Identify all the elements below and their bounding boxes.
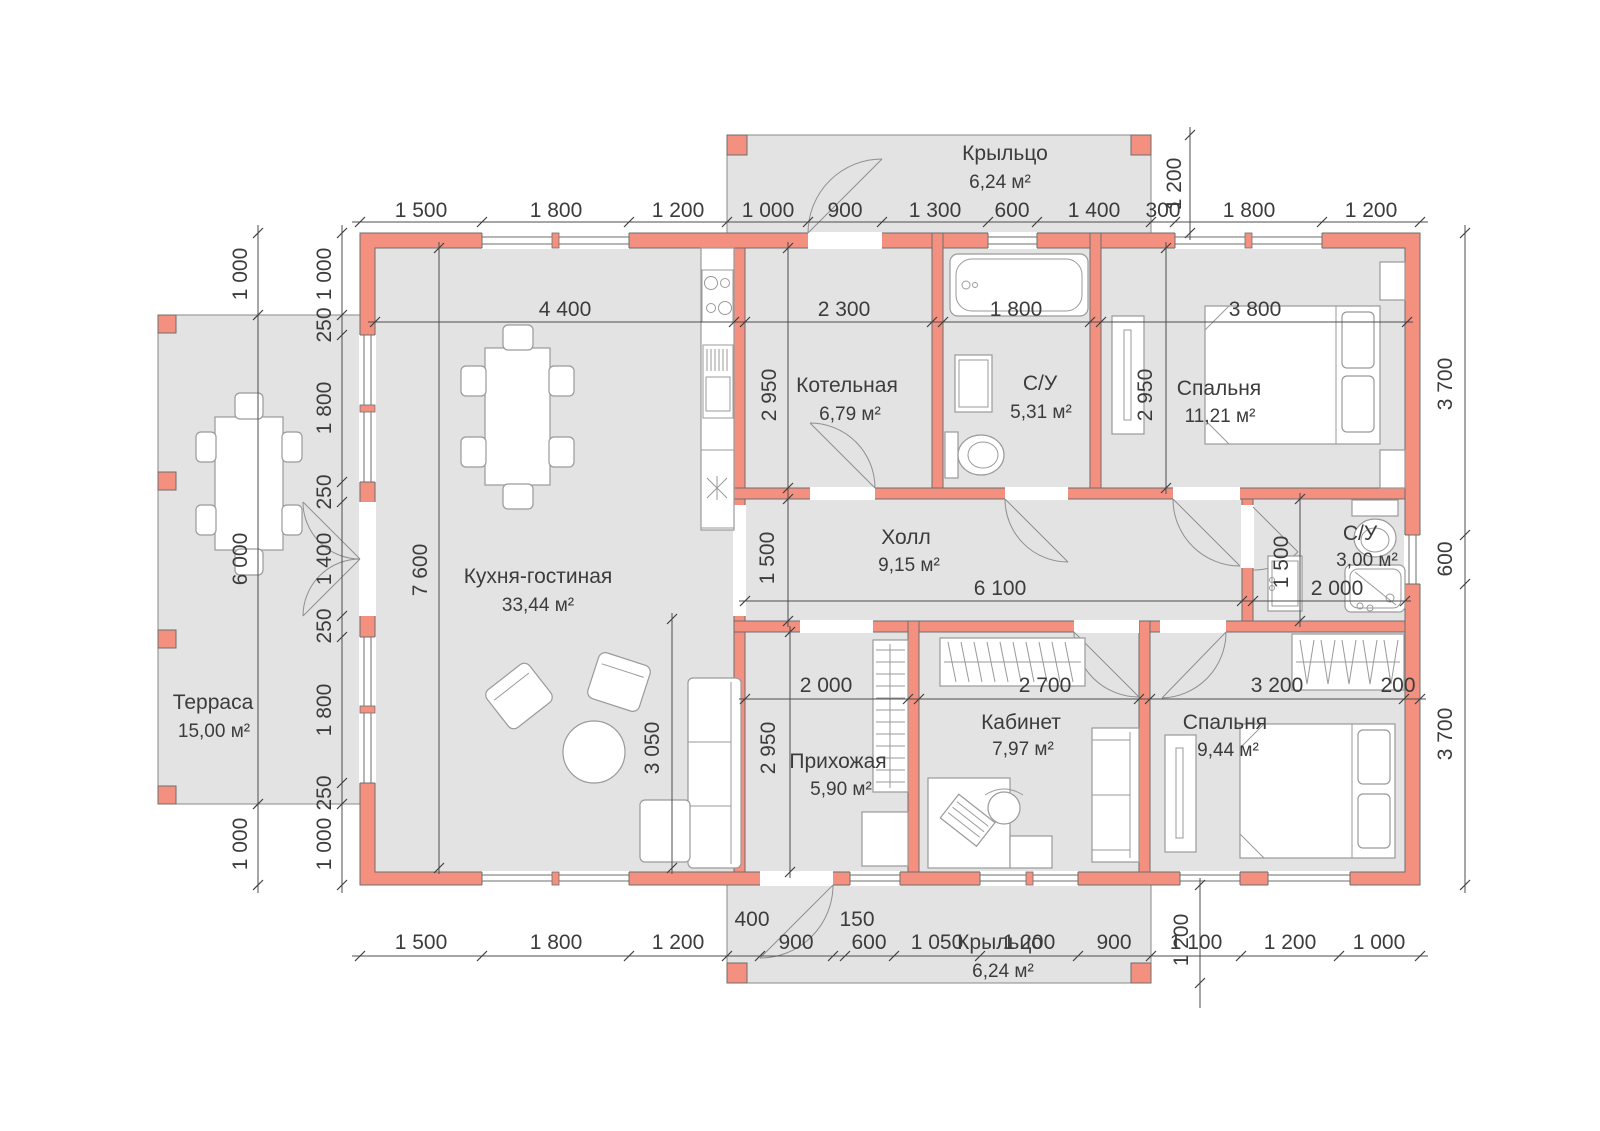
dim-label: 1 400 [1068,199,1121,222]
dim-label: 1 000 [742,199,795,222]
dim-label: 250 [313,307,336,342]
office-chair [988,792,1020,824]
room-label-hall: Холл [881,526,931,549]
room-label-bathroom-main: С/У [1023,372,1058,395]
dim-label: 3 700 [1434,358,1457,411]
room-area-entry: 5,90 м² [810,779,872,800]
dim-label: 1 800 [990,298,1043,321]
room-label-boiler: Котельная [796,374,898,397]
dim-label: 2 000 [1311,577,1364,600]
dim-label: 3 700 [1434,708,1457,761]
dim-label: 1 000 [229,818,252,871]
toilet [945,432,958,478]
dim-label: 2 950 [1134,369,1157,422]
floor-plan-drawing: Крыльцо 6,24 м² Терраса 15,00 м² Кухня-г… [0,0,1600,1131]
dim-label: 250 [313,775,336,810]
dim-label: 600 [994,199,1029,222]
dim-label: 250 [313,474,336,509]
room-area-hall: 9,15 м² [878,555,940,576]
room-area-boiler: 6,79 м² [819,404,881,425]
dim-label: 4 400 [539,298,592,321]
room-area-bathroom-main: 5,31 м² [1010,402,1072,423]
dim-label: 900 [827,199,862,222]
dim-label: 3 200 [1251,674,1304,697]
dim-label: 1 200 [1163,158,1186,211]
dim-label: 600 [1434,541,1457,576]
dim-label: 1 500 [1270,536,1293,589]
dim-label: 2 300 [818,298,871,321]
room-area-porch-bottom: 6,24 м² [972,961,1034,982]
room-area-bedroom2: 9,44 м² [1197,740,1259,761]
dim-label: 150 [839,908,874,931]
dim-label: 1 000 [1353,931,1406,954]
dim-label: 1 200 [1170,914,1193,967]
dim-label: 1 500 [756,532,779,585]
coffee-table [563,721,625,783]
dim-label: 2 950 [757,722,780,775]
wardrobe [1165,735,1196,852]
room-label-entry: Прихожая [789,750,886,773]
dim-label: 1 200 [652,931,705,954]
dim-label: 1 500 [395,199,448,222]
dim-label: 1 200 [1345,199,1398,222]
dim-label: 900 [1096,931,1131,954]
dim-label: 1 400 [313,533,336,586]
sink [955,355,992,412]
room-label-terrace: Терраса [173,691,254,714]
dim-label: 6 100 [974,577,1027,600]
kitchen-counter [701,248,734,530]
dim-label: 2 700 [1019,674,1072,697]
dim-label: 1 000 [313,818,336,871]
dim-label: 1 800 [313,684,336,737]
dim-label: 1 200 [1264,931,1317,954]
room-label-bedroom2: Спальня [1183,711,1267,734]
room-area-bathroom-small: 3,00 м² [1336,550,1398,571]
dim-label: 900 [778,931,813,954]
room-area-porch-top: 6,24 м² [969,172,1031,193]
dim-label: 1 000 [229,248,252,301]
floor-plan-canvas: Крыльцо 6,24 м² Терраса 15,00 м² Кухня-г… [0,0,1600,1131]
dim-label: 200 [1380,674,1415,697]
room-label-bedroom1: Спальня [1177,377,1261,400]
dim-label: 1 500 [395,931,448,954]
dim-label: 6 000 [229,533,252,586]
dim-label: 2 000 [800,674,853,697]
sofa [688,678,741,868]
dim-label: 1 800 [530,199,583,222]
toilet-tank [1352,500,1398,516]
dim-label: 1 200 [1003,931,1056,954]
dim-label: 600 [851,931,886,954]
room-area-office: 7,97 м² [992,739,1054,760]
dim-label: 250 [313,608,336,643]
room-area-kitchen-living: 33,44 м² [502,595,574,616]
room-label-kitchen-living: Кухня-гостиная [464,565,613,588]
dim-label: 3 050 [641,722,664,775]
dim-label: 7 600 [409,544,432,597]
dim-label: 1 800 [530,931,583,954]
room-area-bedroom1: 11,21 м² [1185,406,1256,427]
dim-label: 3 800 [1229,298,1282,321]
dim-label: 2 950 [758,369,781,422]
dim-label: 1 200 [652,199,705,222]
dim-label: 1 050 [911,931,964,954]
room-area-terrace: 15,00 м² [178,721,250,742]
room-label-office: Кабинет [981,711,1061,734]
dim-label: 1 300 [909,199,962,222]
room-label-porch-top: Крыльцо [962,142,1048,165]
dim-label: 1 800 [1223,199,1276,222]
dim-label: 1 000 [313,248,336,301]
room-label-bathroom-small: С/У [1343,522,1378,545]
dim-label: 1 800 [313,382,336,435]
dim-label: 400 [734,908,769,931]
